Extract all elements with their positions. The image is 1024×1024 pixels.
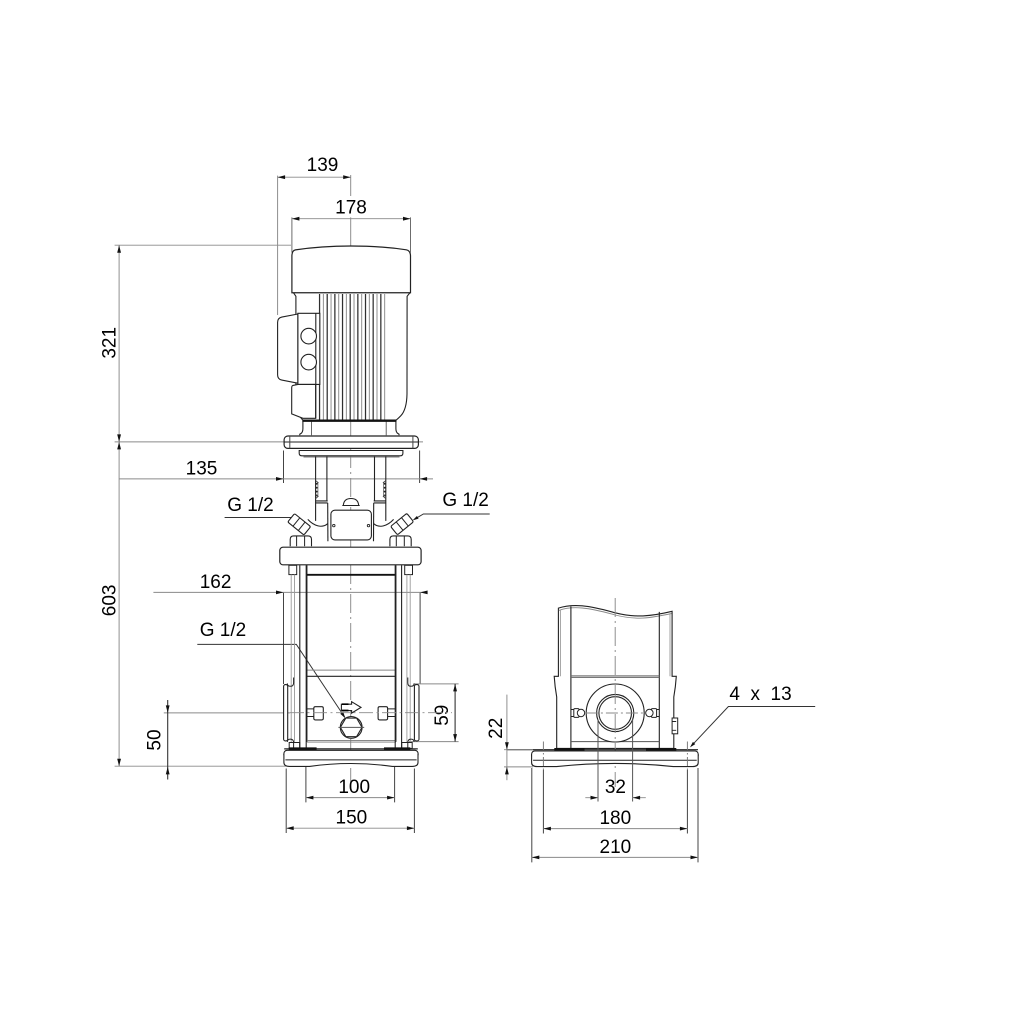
svg-text:603: 603 xyxy=(100,585,121,617)
svg-text:22: 22 xyxy=(486,718,507,739)
svg-text:135: 135 xyxy=(186,458,218,479)
svg-text:210: 210 xyxy=(600,837,632,858)
svg-text:150: 150 xyxy=(336,808,368,829)
svg-text:59: 59 xyxy=(432,705,453,726)
svg-text:G 1/2: G 1/2 xyxy=(227,495,273,516)
svg-text:4 x 13: 4 x 13 xyxy=(729,684,791,705)
svg-text:321: 321 xyxy=(100,327,121,359)
svg-text:180: 180 xyxy=(599,808,631,829)
svg-text:139: 139 xyxy=(307,155,339,176)
svg-text:G 1/2: G 1/2 xyxy=(442,490,488,511)
svg-text:100: 100 xyxy=(338,777,370,798)
svg-text:32: 32 xyxy=(605,777,626,798)
svg-text:178: 178 xyxy=(335,198,367,219)
svg-text:162: 162 xyxy=(200,572,232,593)
svg-text:G 1/2: G 1/2 xyxy=(200,620,246,641)
svg-text:50: 50 xyxy=(145,729,166,750)
